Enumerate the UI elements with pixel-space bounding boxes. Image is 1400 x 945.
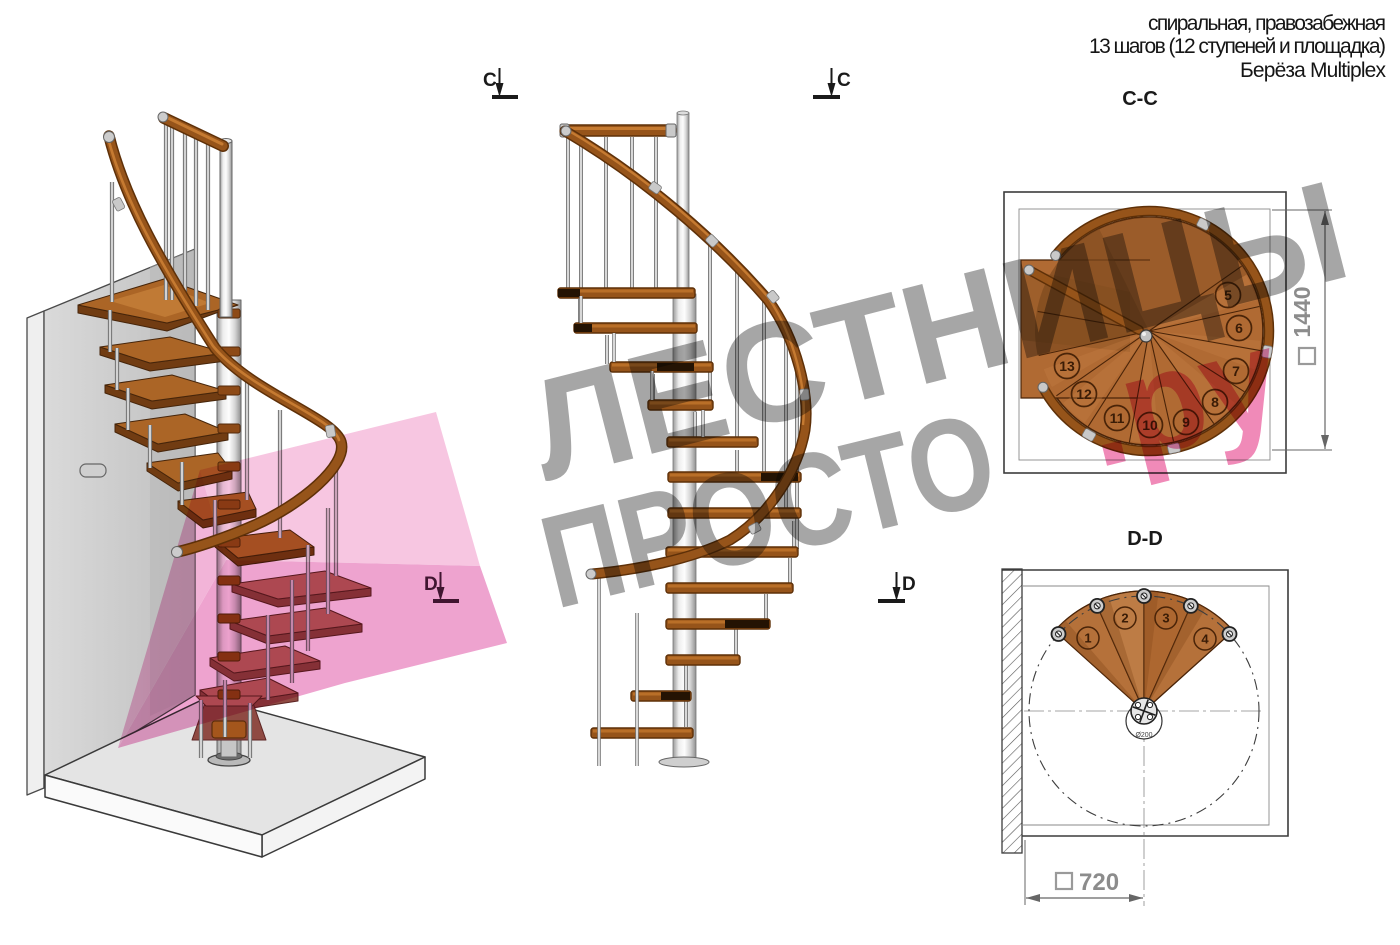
svg-text:Берёза Multiplex: Берёза Multiplex [1240,59,1387,82]
svg-text:C: C [837,70,851,91]
svg-text:D-D: D-D [1127,528,1163,550]
svg-text:4: 4 [1201,632,1209,647]
svg-text:720: 720 [1079,869,1119,896]
svg-text:D: D [424,574,438,595]
svg-text:2: 2 [1121,611,1128,626]
svg-text:1: 1 [1084,631,1091,646]
svg-text:C-C: C-C [1122,88,1158,110]
svg-text:Ø200: Ø200 [1135,732,1152,739]
svg-text:13 шагов (12 ступеней и площад: 13 шагов (12 ступеней и площадка) [1089,35,1386,58]
svg-text:спиральная, правозабежная: спиральная, правозабежная [1148,12,1386,35]
svg-text:C: C [483,70,497,91]
svg-text:3: 3 [1162,611,1169,626]
svg-text:D: D [902,574,916,595]
